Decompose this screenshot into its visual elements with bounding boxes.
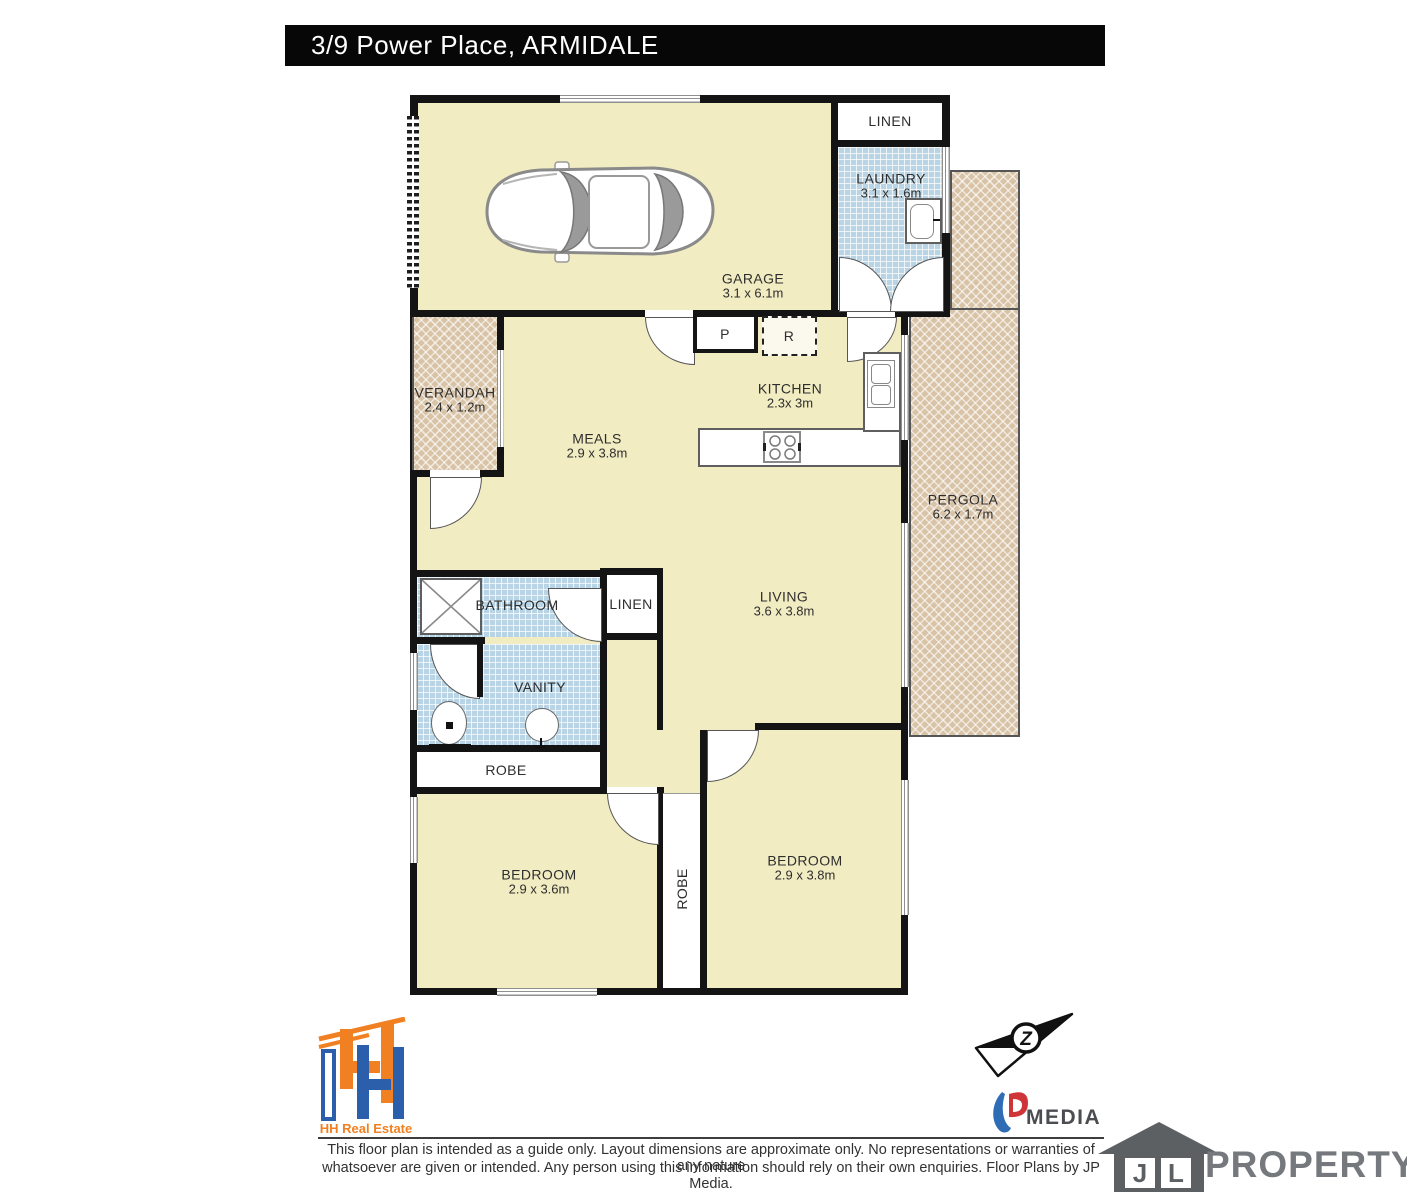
kitchen-sink [867, 360, 895, 408]
sink-bowl [871, 364, 891, 384]
vanity-basin [525, 708, 559, 742]
wall [600, 568, 663, 575]
window [901, 780, 909, 915]
wall [480, 470, 504, 477]
window [560, 95, 700, 103]
wall [657, 637, 663, 730]
room-label-vanity: VANITY [514, 679, 566, 695]
tub-bowl [910, 204, 934, 239]
hh-real-estate-logo [315, 1017, 411, 1121]
wall [497, 312, 504, 350]
wall [657, 568, 663, 640]
room-label-laundry: LAUNDRY3.1 x 1.6m [856, 170, 925, 201]
jp-media-logo-icon [990, 1090, 1028, 1136]
room-label-bathroom: BATHROOM [475, 597, 558, 613]
wall [410, 787, 610, 794]
laundry-tub [905, 198, 942, 244]
jl-property-logo-text: PROPERTY [1205, 1144, 1407, 1186]
window [410, 797, 418, 863]
toilet [431, 701, 467, 745]
room-label-kitchen: KITCHEN2.3x 3m [758, 380, 822, 411]
room-label-pergola: PERGOLA6.2 x 1.7m [928, 491, 999, 522]
toilet-button [446, 722, 453, 729]
north-letter: Z [1019, 1029, 1033, 1050]
window [410, 653, 418, 710]
room-label-living: LIVING3.6 x 3.8m [754, 588, 815, 619]
shower [420, 578, 482, 635]
garage-door [407, 116, 419, 288]
disclaimer-line-2: whatsoever are given or intended. Any pe… [318, 1160, 1104, 1192]
room-label-bedroom-right: BEDROOM2.9 x 3.8m [767, 852, 842, 883]
fixture-label-pantry: P [720, 326, 730, 342]
wall [417, 637, 485, 644]
wall [410, 470, 430, 477]
jl-property-logo-house: J L [1098, 1118, 1220, 1194]
jl-letter-l: L [1168, 1158, 1184, 1188]
pergola-area-upper [950, 170, 1020, 312]
wall [410, 570, 607, 577]
wall [755, 723, 908, 730]
north-arrow-icon: Z [968, 1008, 1080, 1080]
hh-real-estate-text: HH Real Estate [312, 1121, 420, 1136]
room-label-linen-hall: LINEN [609, 596, 652, 612]
room-label-garage: GARAGE3.1 x 6.1m [722, 270, 784, 301]
fixture-label-refrigerator: R [784, 328, 795, 344]
jp-media-logo-text: MEDIA [1026, 1106, 1101, 1130]
wall [700, 730, 707, 988]
room-label-linen-top: LINEN [868, 113, 911, 129]
window [901, 335, 909, 440]
page-title: 3/9 Power Place, ARMIDALE [285, 25, 1105, 66]
car-icon [477, 160, 723, 264]
tub-tap [933, 219, 940, 221]
window [497, 350, 504, 447]
wall [600, 633, 663, 640]
jl-letter-j: J [1133, 1158, 1147, 1188]
room-label-robe-between: ROBE [674, 868, 690, 909]
floor-plan-page: 3/9 Power Place, ARMIDALE [0, 0, 1407, 1200]
room-label-verandah: VERANDAH2.4 x 1.2m [415, 384, 496, 415]
toilet-base [429, 744, 471, 752]
basin-tap [535, 746, 547, 748]
footer-divider [318, 1137, 1104, 1139]
room-label-meals: MEALS2.9 x 3.8m [567, 430, 628, 461]
room-label-robe-hall: ROBE [485, 762, 526, 778]
window [497, 988, 597, 996]
sink-bowl [871, 385, 891, 405]
window [942, 147, 950, 233]
shower-glass [422, 580, 480, 633]
room-label-bedroom-left: BEDROOM2.9 x 3.6m [501, 866, 576, 897]
door-leaf [477, 644, 483, 697]
cooktop [763, 431, 801, 463]
window [901, 523, 909, 687]
